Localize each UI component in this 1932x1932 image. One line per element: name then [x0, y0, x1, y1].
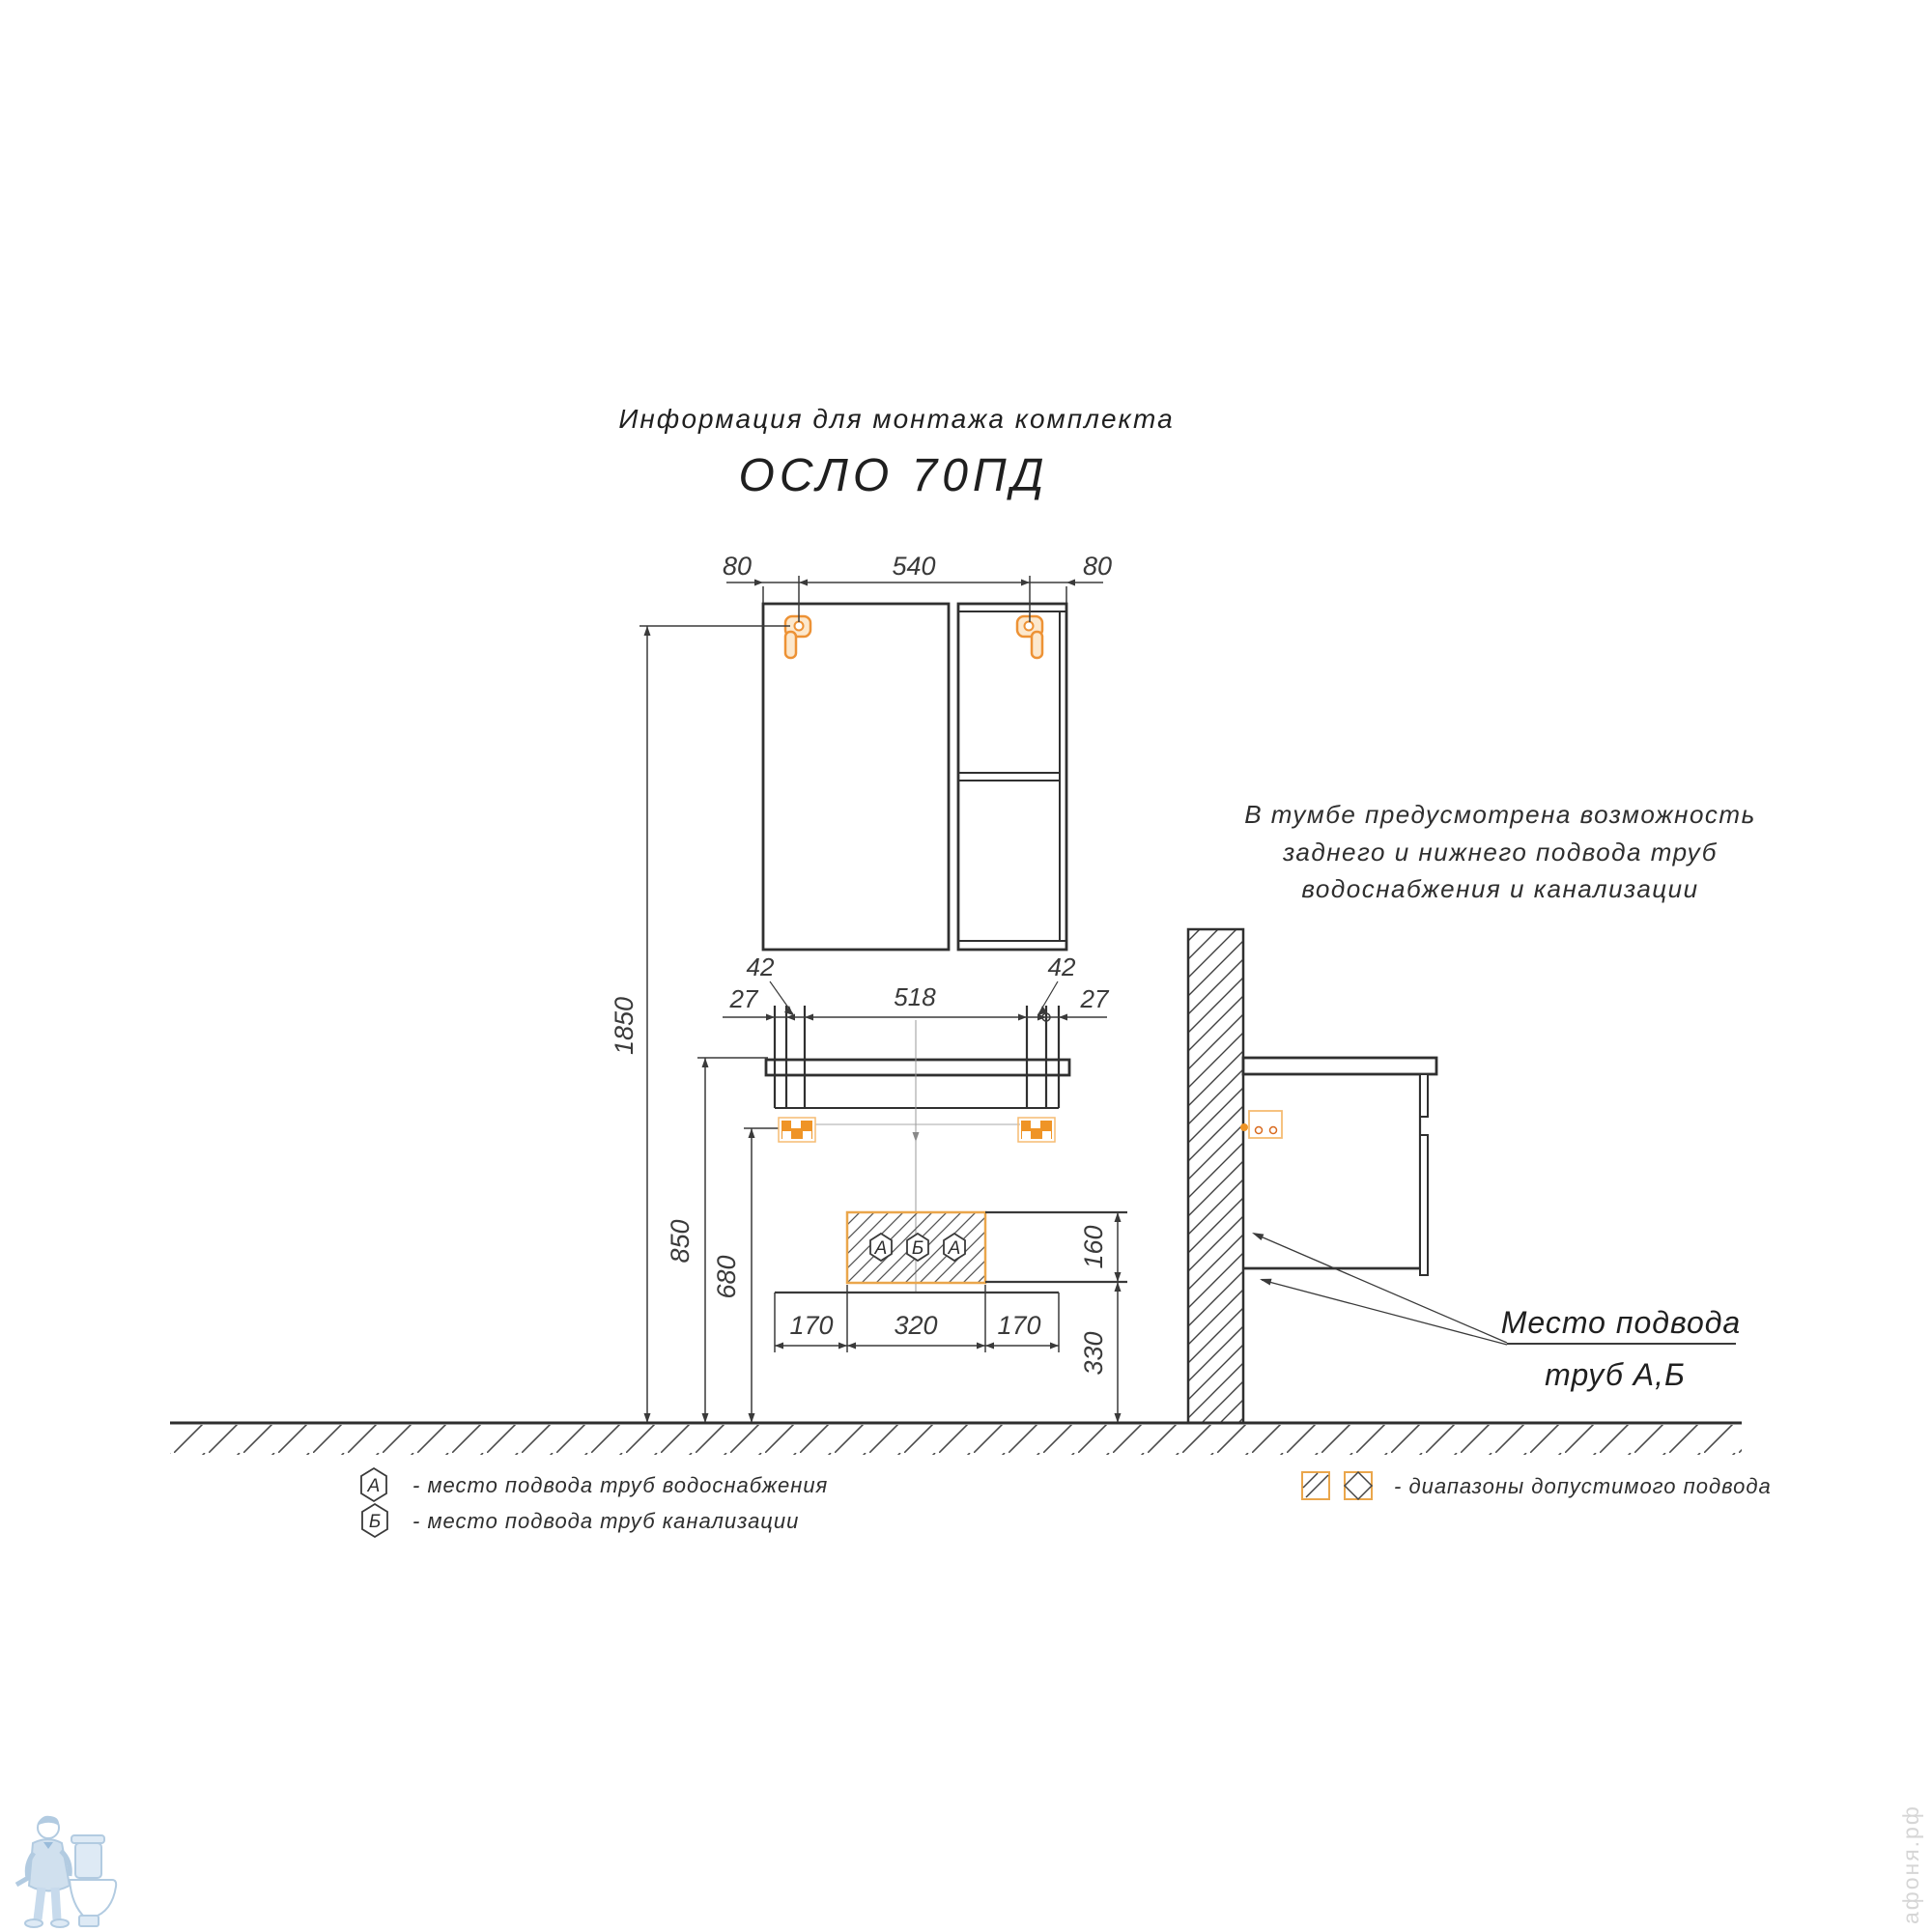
countertop-front [766, 1060, 1069, 1075]
legend-right: - диапазоны допустимого подвода [1302, 1472, 1772, 1499]
dim-label-80-left: 80 [723, 552, 752, 581]
marker-letter: А [948, 1238, 961, 1259]
dim-label-540: 540 [892, 552, 935, 581]
dim-label-160: 160 [1079, 1225, 1108, 1268]
dim-label-42-right: 42 [1048, 952, 1076, 981]
technical-drawing: Информация для монтажа комплекта ОСЛО 70… [0, 0, 1932, 1932]
dim-label-320: 320 [894, 1311, 937, 1340]
hatch-swatch-diamond-icon [1345, 1472, 1372, 1499]
brand-watermark: афоня.рф [1898, 1804, 1923, 1924]
dim-label-1850: 1850 [610, 997, 639, 1055]
dim-label-850: 850 [666, 1219, 695, 1263]
mounting-hook-right-icon [1017, 616, 1042, 658]
page-title: Информация для монтажа комплекта [618, 404, 1174, 434]
dim-label-42-left: 42 [747, 952, 775, 981]
model-name: ОСЛО 70ПД [739, 450, 1049, 501]
mounting-hook-left-icon [785, 616, 810, 658]
marker-letter: А [874, 1238, 888, 1259]
dim-label-27-left: 27 [729, 984, 759, 1013]
legend-symbol-a: А [361, 1468, 386, 1501]
open-shelf-unit [958, 604, 1066, 950]
leader-text-line2: труб А,Б [1545, 1357, 1686, 1392]
door-front-lower [1420, 1135, 1428, 1275]
title-block: Информация для монтажа комплекта ОСЛО 70… [618, 404, 1174, 501]
side-view [1188, 929, 1436, 1423]
wall-bracket-side-icon [1240, 1111, 1282, 1138]
legend-left: А - место подвода труб водоснабжения Б -… [361, 1468, 828, 1537]
dimension-170-320-170: 170 320 170 [775, 1285, 1059, 1352]
floor [170, 1423, 1742, 1455]
dim-label-27-right: 27 [1080, 984, 1110, 1013]
dimension-680: 680 [712, 1128, 779, 1423]
hatch-swatch-diagonal-icon [1302, 1472, 1329, 1499]
wall-bracket-left-icon [779, 1118, 815, 1142]
installation-drawing-page: Информация для монтажа комплекта ОСЛО 70… [0, 0, 1932, 1932]
marker-letter: Б [912, 1238, 923, 1259]
dim-label-680: 680 [712, 1255, 741, 1298]
legend-text-water: - место подвода труб водоснабжения [412, 1473, 828, 1497]
legend-symbol-b: Б [362, 1504, 387, 1537]
dim-label-518: 518 [894, 982, 936, 1011]
dimension-850: 850 [666, 1058, 768, 1423]
wall-bracket-right-icon [1018, 1118, 1055, 1142]
dim-label-170-right: 170 [997, 1311, 1040, 1340]
dim-label-80-right: 80 [1083, 552, 1112, 581]
pipe-marker-b-center: Б [907, 1234, 928, 1261]
pipe-marker-a-right: А [944, 1234, 965, 1261]
pipe-marker-a-left: А [870, 1234, 892, 1261]
leader-note: Место подвода труб А,Б [1252, 1233, 1741, 1392]
note-line1: В тумбе предусмотрена возможность [1244, 800, 1756, 829]
door-front-upper [1420, 1074, 1428, 1117]
legend-symbol-a-letter: А [367, 1476, 381, 1496]
note-line3: водоснабжения и канализации [1301, 874, 1698, 903]
leader-text-line1: Место подвода [1501, 1305, 1741, 1340]
note-block: В тумбе предусмотрена возможность заднег… [1244, 800, 1756, 903]
dimension-vanity-rails: 42 42 27 518 27 [723, 952, 1110, 1021]
legend-text-ranges: - диапазоны допустимого подвода [1394, 1474, 1772, 1498]
plumber-watermark-icon [16, 1816, 116, 1927]
mirror-mounting-hooks [785, 616, 1042, 658]
supply-range-box: А Б А [847, 1212, 985, 1283]
wall-section [1188, 929, 1243, 1423]
legend-text-sewer: - место подвода труб канализации [412, 1509, 799, 1533]
mirror-cabinet-front-view [763, 604, 1066, 950]
dim-label-170-left: 170 [789, 1311, 833, 1340]
note-line2: заднего и нижнего подвода труб [1282, 838, 1718, 867]
legend-symbol-b-letter: Б [369, 1512, 381, 1532]
dim-label-330: 330 [1079, 1331, 1108, 1375]
countertop-side [1243, 1058, 1436, 1074]
hanging-rails [775, 1006, 1059, 1108]
